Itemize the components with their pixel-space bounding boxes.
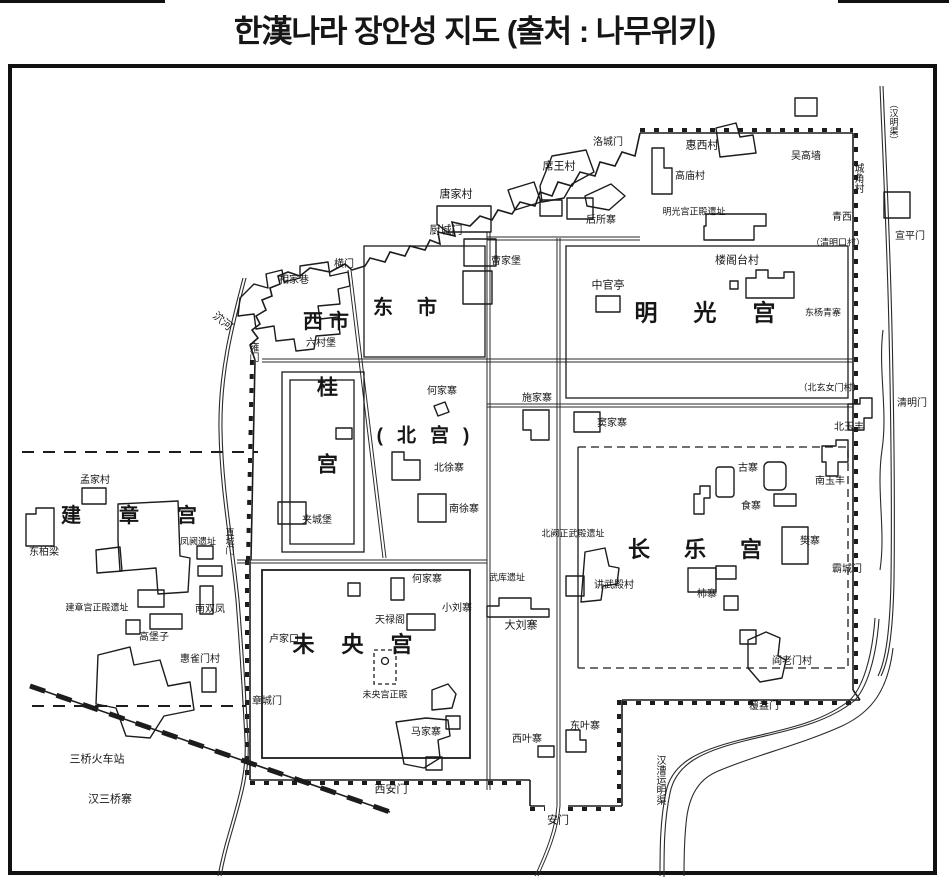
city-wall xyxy=(247,130,860,809)
railroad xyxy=(30,686,390,812)
buildings xyxy=(26,98,910,770)
map-canvas xyxy=(0,0,949,879)
page: 한漢나라 장안성 지도 (출처 : 나무위키) xyxy=(0,0,949,879)
